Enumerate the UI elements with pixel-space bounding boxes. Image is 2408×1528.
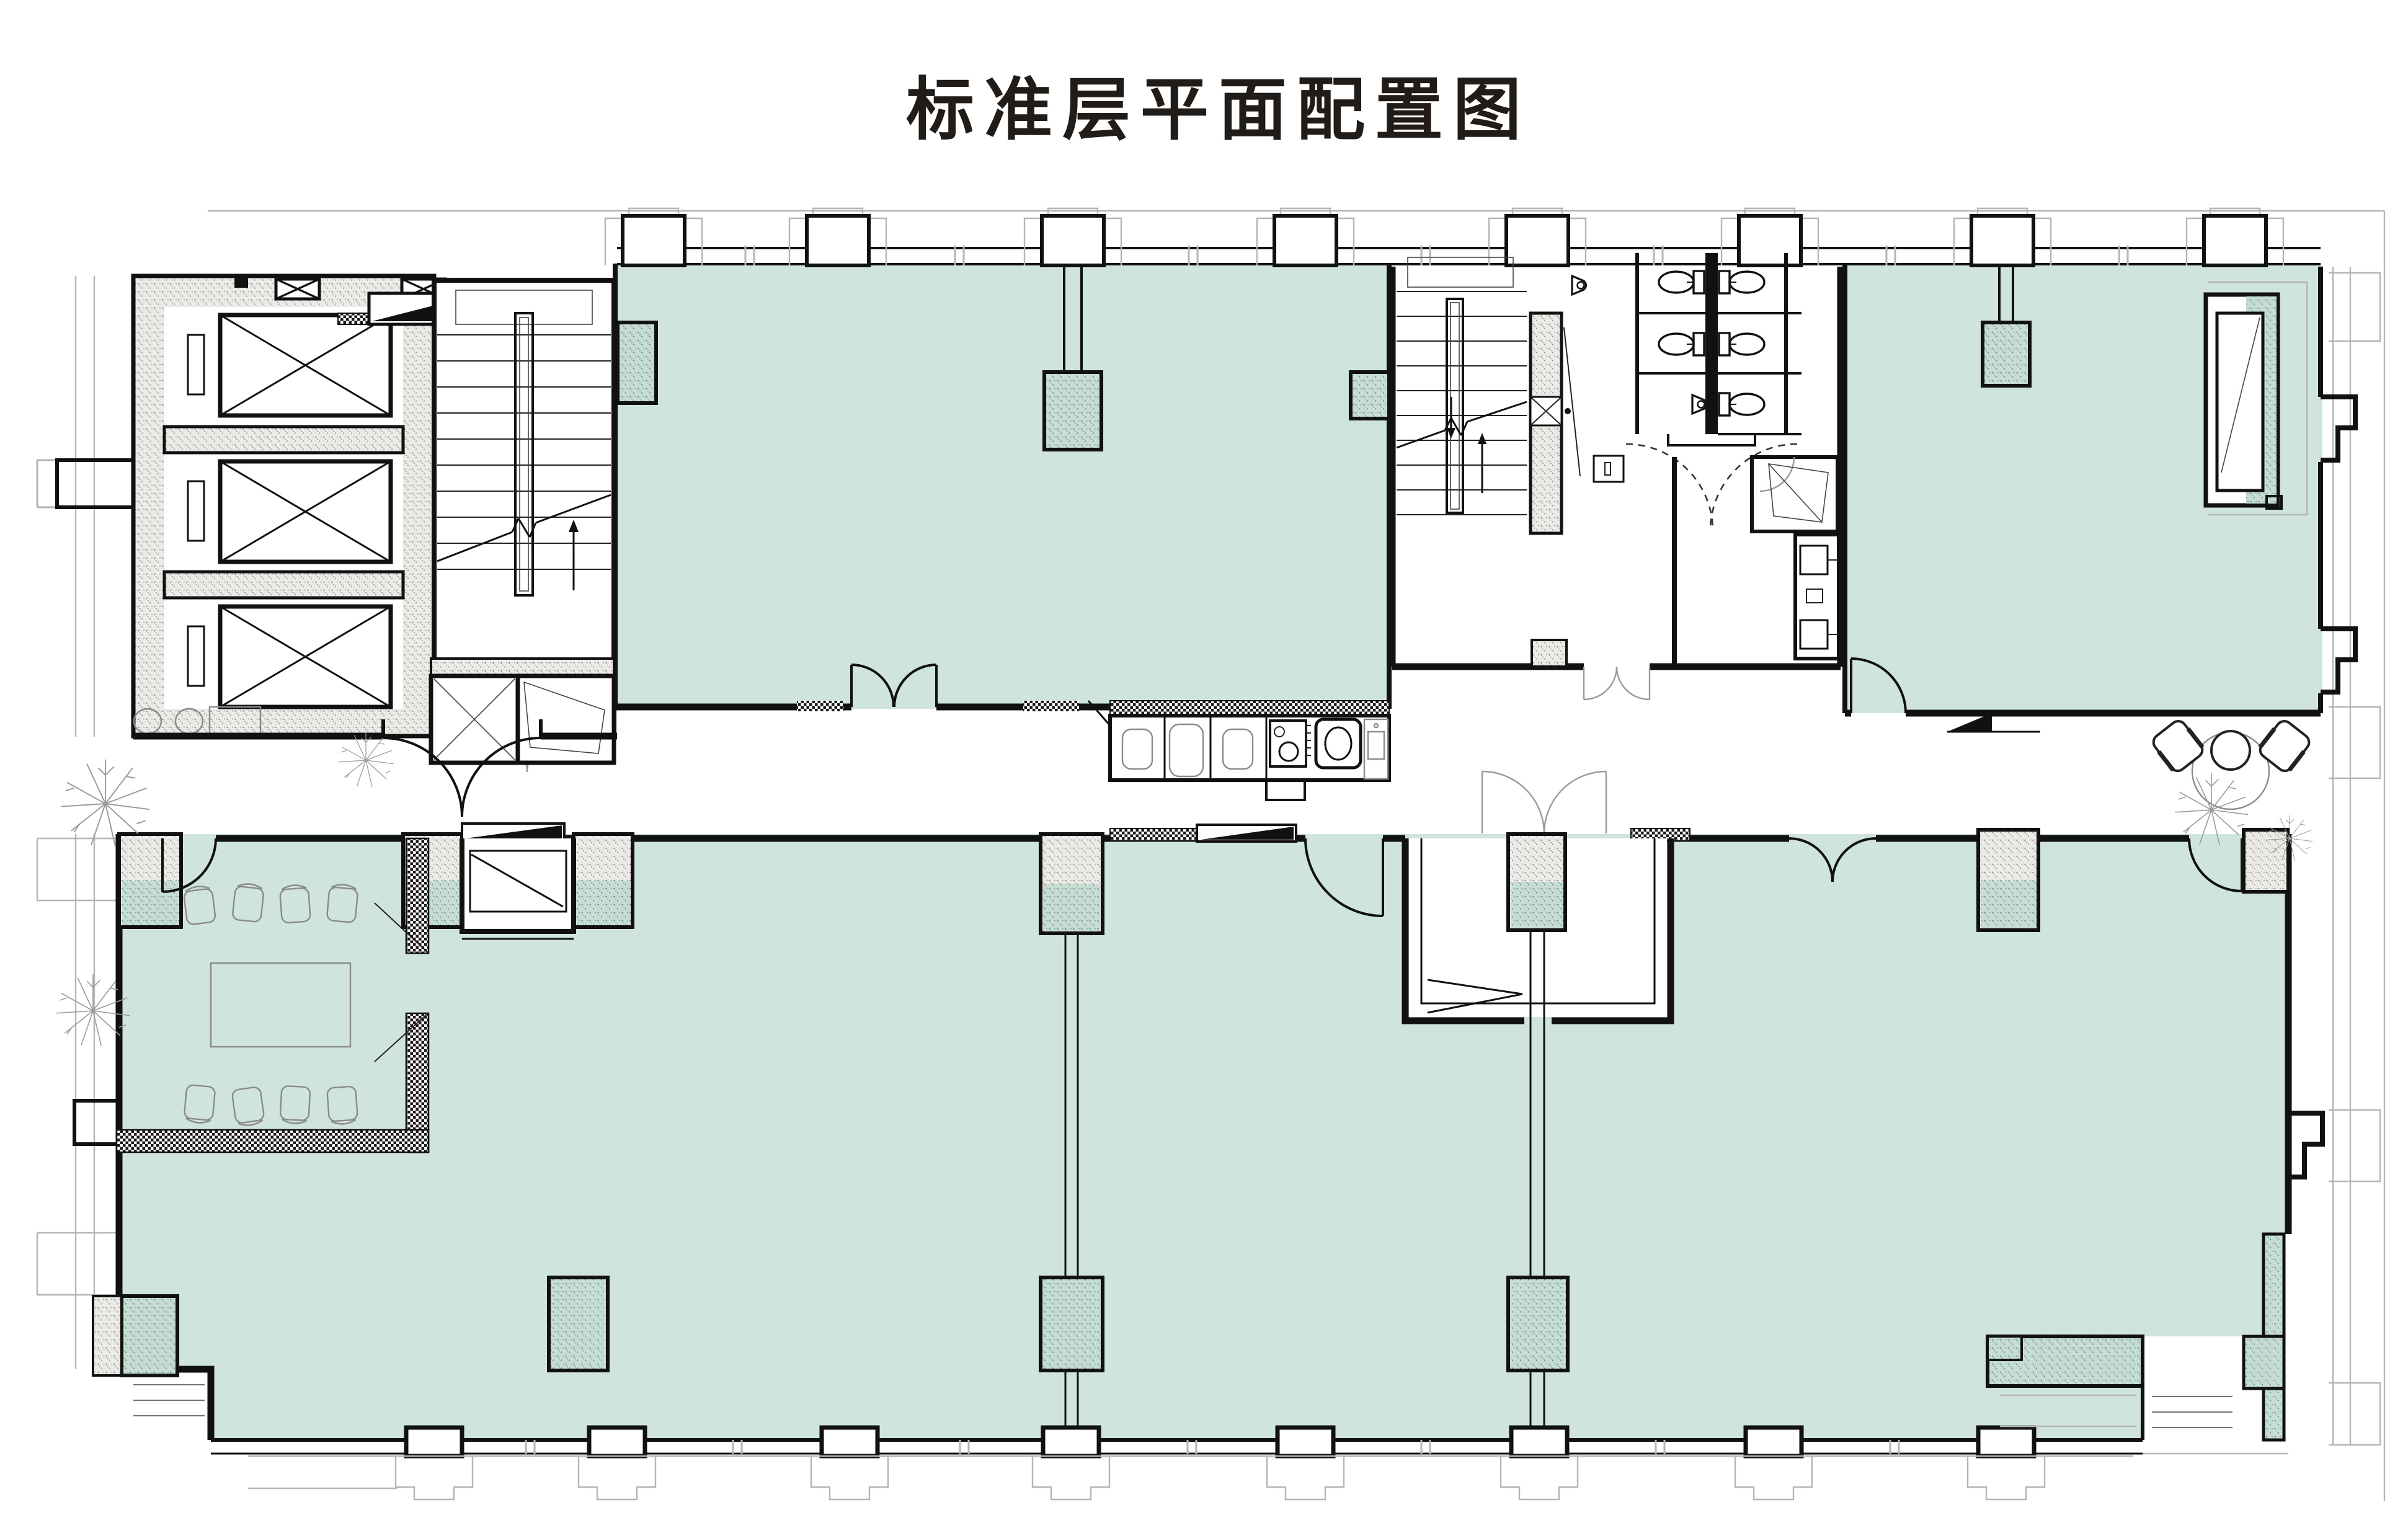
toilet-icon [1719, 393, 1764, 415]
sink-icon [1316, 719, 1361, 768]
vestibule-doors [1482, 771, 1606, 833]
service-shaft-rooms [431, 659, 614, 763]
range-icon [1270, 721, 1311, 766]
drawing-sheet: 标准层平面配置图 [0, 0, 2408, 1528]
round-table [2211, 731, 2250, 770]
tree-icon [338, 732, 393, 787]
west-wall-notch [57, 460, 133, 507]
elevator-shaft [188, 461, 391, 562]
terrace-seating [2150, 718, 2312, 809]
urinal-icon [1572, 276, 1586, 295]
wall-damper-icon [1531, 397, 1571, 425]
elevator-bank [57, 276, 434, 736]
armchair [2150, 718, 2205, 775]
upper-wing [57, 208, 2355, 817]
page-title: 标准层平面配置图 [906, 70, 1531, 149]
toilet-icon [1719, 333, 1764, 355]
facade-piers-south [248, 1456, 2133, 1499]
fire-damper-icon [276, 279, 319, 299]
urinal-icon [1692, 395, 1707, 414]
toilet-icon [1659, 333, 1704, 355]
pantry-strip [1088, 701, 1389, 800]
elevator-shaft [188, 606, 391, 707]
vestibule-west [462, 838, 574, 939]
vanity-basins [1795, 535, 1839, 659]
lower-wing [74, 771, 2322, 1499]
floor-plan-svg: 标准层平面配置图 [0, 0, 2408, 1528]
window-mullion-ticks [526, 1440, 1899, 1454]
east-wall-column-lower [2288, 1113, 2322, 1177]
armchair [2257, 718, 2312, 775]
stairwell-center [1397, 257, 1527, 515]
toilet-icon [1659, 271, 1704, 293]
office-suite-west-floor [617, 264, 1389, 709]
center-core [1392, 253, 1841, 700]
elevator-shaft [188, 315, 391, 415]
toilet-icon [1719, 271, 1764, 293]
service-room [1752, 457, 1837, 531]
restroom-block [1572, 253, 1839, 667]
cleaners-sink [1594, 456, 1624, 482]
lobby-double-door [133, 719, 617, 817]
